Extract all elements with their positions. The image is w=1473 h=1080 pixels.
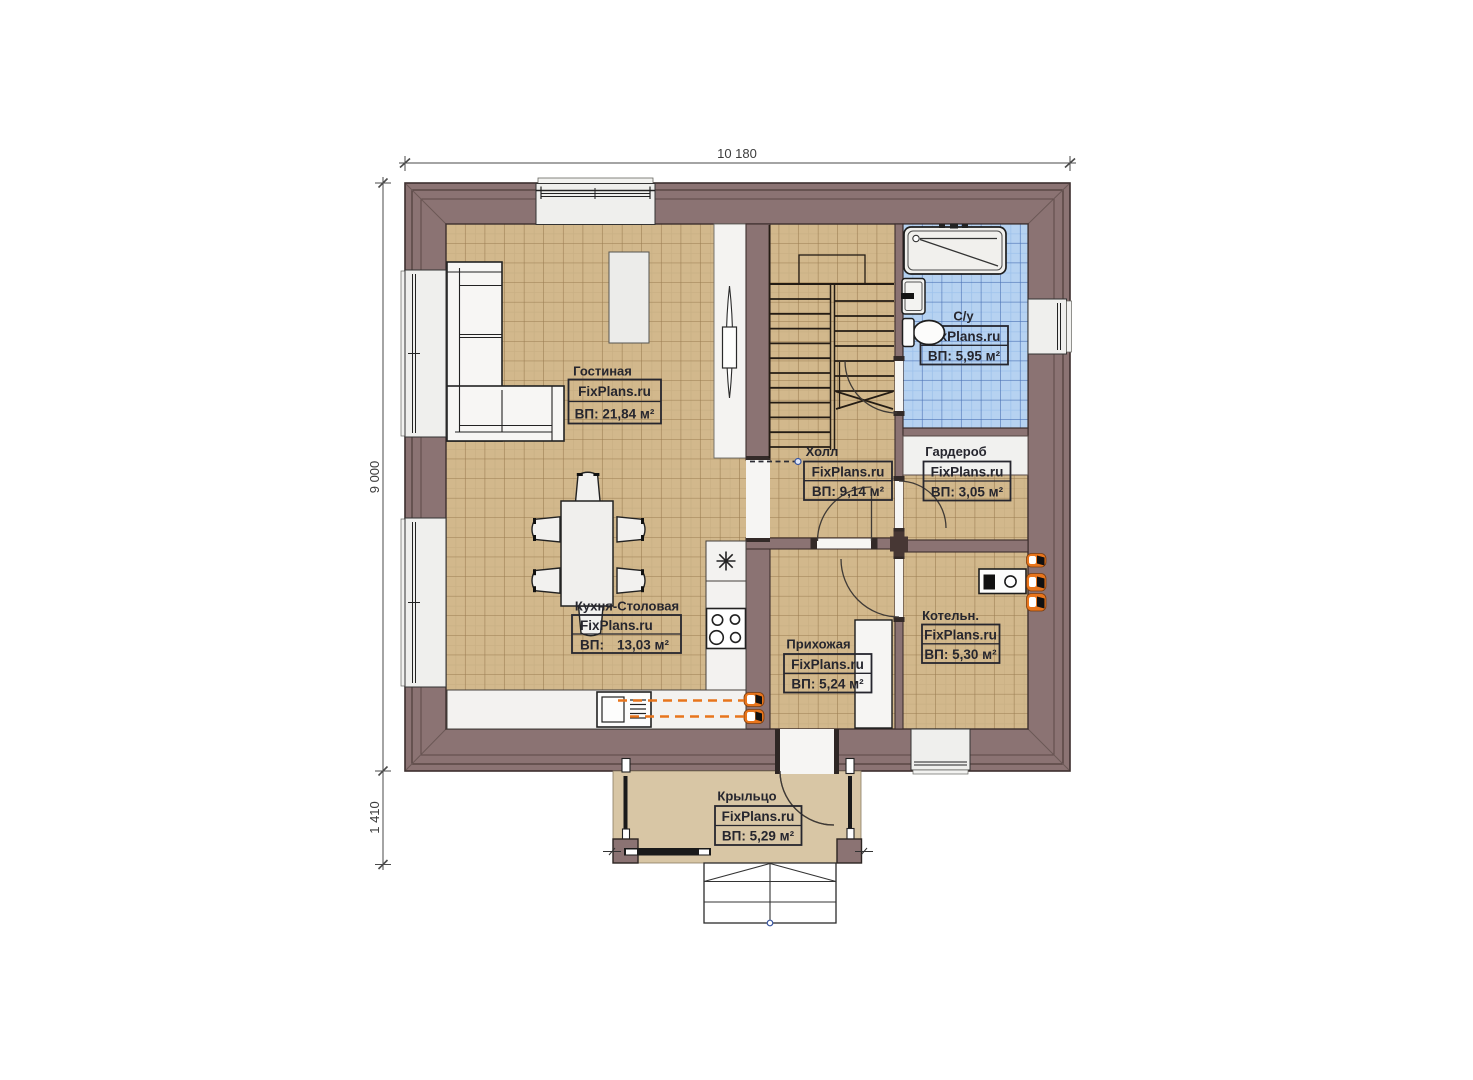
- svg-text:ВП: 5,95 м²: ВП: 5,95 м²: [928, 349, 1001, 364]
- svg-text:FixPlans.ru: FixPlans.ru: [578, 384, 651, 399]
- svg-text:Прихожая: Прихожая: [786, 637, 850, 652]
- svg-text:ВП: 3,05 м²: ВП: 3,05 м²: [931, 485, 1004, 500]
- svg-text:Кухня-Столовая: Кухня-Столовая: [575, 599, 679, 614]
- svg-text:Крыльцо: Крыльцо: [717, 789, 776, 804]
- svg-text:FixPlans.ru: FixPlans.ru: [722, 809, 795, 824]
- svg-text:FixPlans.ru: FixPlans.ru: [924, 628, 997, 643]
- svg-text:ВП: 5,29 м²: ВП: 5,29 м²: [722, 829, 795, 844]
- svg-text:Гостиная: Гостиная: [573, 364, 632, 379]
- svg-text:13,03 м²: 13,03 м²: [617, 638, 670, 653]
- svg-text:1 410: 1 410: [367, 801, 382, 834]
- svg-text:С/у: С/у: [953, 309, 974, 324]
- svg-text:FixPlans.ru: FixPlans.ru: [931, 465, 1004, 480]
- svg-text:ВП:: ВП:: [580, 638, 604, 653]
- svg-text:Гардероб: Гардероб: [925, 444, 986, 459]
- svg-text:FixPlans.ru: FixPlans.ru: [791, 657, 864, 672]
- svg-text:ВП: 9,14 м²: ВП: 9,14 м²: [812, 484, 885, 499]
- svg-text:Холл: Холл: [806, 444, 839, 459]
- svg-text:ВП: 5,30 м²: ВП: 5,30 м²: [924, 647, 997, 662]
- svg-text:ВП: 5,24 м²: ВП: 5,24 м²: [791, 677, 864, 692]
- svg-text:Котельн.: Котельн.: [922, 608, 979, 623]
- svg-text:FixPlans.ru: FixPlans.ru: [812, 465, 885, 480]
- svg-text:ВП: 21,84 м²: ВП: 21,84 м²: [575, 407, 655, 422]
- svg-text:10 180: 10 180: [717, 146, 757, 161]
- svg-text:FixPlans.ru: FixPlans.ru: [580, 618, 653, 633]
- svg-text:9 000: 9 000: [367, 461, 382, 494]
